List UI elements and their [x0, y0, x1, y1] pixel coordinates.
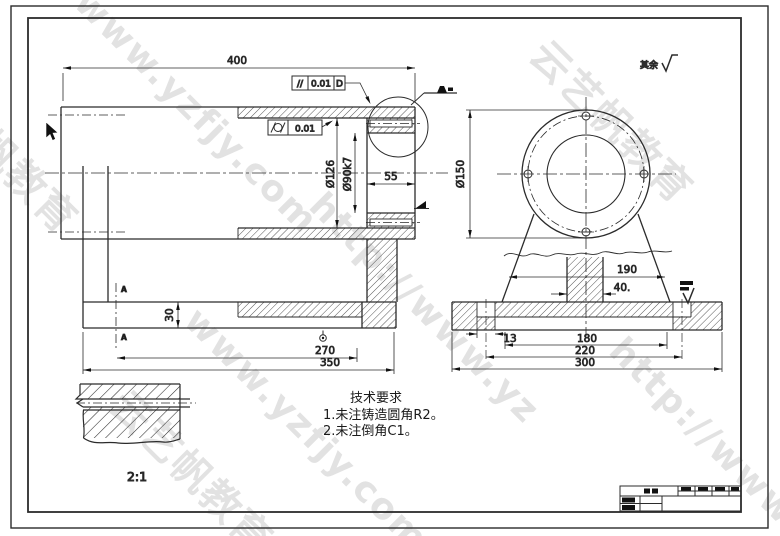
- surface-roughness-icon: [411, 86, 457, 105]
- drawing-canvas: 400 Ø126 Ø90k7 55 30 270 350 A A // 0.01…: [0, 0, 780, 536]
- gdt-symbol: //: [297, 80, 304, 90]
- dim-base-height: 30: [164, 308, 176, 321]
- gdt-datum: D: [336, 80, 343, 90]
- dim-rib-width: 40.: [614, 282, 631, 294]
- dim-flange-diameter: Ø150: [455, 160, 467, 188]
- surface-note-text: 其余: [640, 59, 658, 71]
- gdt-tolerance: 0.01: [311, 80, 331, 90]
- mouse-cursor: [46, 122, 58, 141]
- dim-span-180: 180: [577, 333, 597, 345]
- right-view-front: [452, 97, 722, 361]
- right-view-dimensions: Ø150 190 40. 13 180 220 300: [452, 110, 722, 372]
- section-label-a: A: [121, 333, 127, 342]
- datum-flag-icon: [414, 201, 429, 209]
- dim-span-220: 220: [575, 345, 595, 357]
- title-block: [620, 486, 741, 511]
- detail-scale-label: 2:1: [127, 469, 147, 484]
- dim-base-width: 300: [575, 357, 595, 369]
- dim-shoulder-width: 190: [617, 264, 637, 276]
- cylindricity-icon: [271, 123, 285, 133]
- gdt-tolerance: 0.01: [295, 125, 315, 135]
- dim-overall-length: 400: [227, 55, 247, 67]
- dim-bore-outer: Ø126: [325, 160, 337, 189]
- cad-drawing-page: www.yzfjy.com 云艺帆教育 云艺帆教育 http://www.yz …: [0, 0, 780, 536]
- dim-bore-fit: Ø90k7: [342, 157, 354, 191]
- detail-view: 2:1: [76, 384, 196, 484]
- gdt-cylindricity-frame: 0.01: [268, 120, 333, 135]
- section-label-a: A: [121, 285, 127, 294]
- dim-base-span-inner: 270: [315, 345, 335, 357]
- gdt-parallelism-frame: // 0.01 D: [292, 76, 371, 104]
- datum-target-icon: [320, 331, 327, 342]
- dim-base-span-outer: 350: [320, 357, 340, 369]
- roughness-check-icon: [662, 55, 678, 71]
- dim-sleeve-length: 55: [384, 171, 397, 183]
- dim-slot-offset: 13: [503, 333, 516, 345]
- left-view-section: [45, 97, 448, 350]
- surface-note: 其余: [640, 55, 678, 71]
